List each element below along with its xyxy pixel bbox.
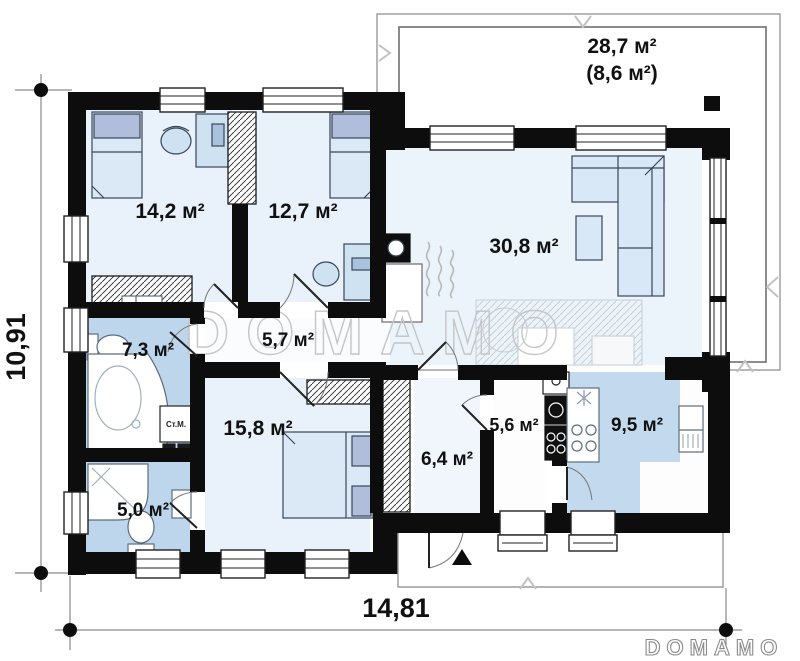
window-icon	[305, 550, 349, 578]
bed-icon	[92, 112, 142, 198]
floor-plan-drawing: DOMAMO	[0, 0, 800, 661]
room-area-label-bathroom: 7,3 м²	[122, 340, 174, 361]
room-area-label-bedroom2: 12,7 м²	[268, 200, 337, 223]
room-area-label-terrace: 28,7 м²	[587, 35, 656, 58]
window-icon	[221, 550, 265, 578]
dimension-dot	[34, 83, 48, 97]
bed-icon	[330, 112, 376, 198]
window-icon	[64, 308, 88, 352]
room-area-label-hall: 5,7 м²	[262, 330, 314, 351]
room-area-label-wc: 5,0 м²	[117, 500, 169, 521]
room-pantry	[494, 378, 545, 513]
room-area-label-living: 30,8 м²	[489, 235, 558, 258]
fridge-icon	[679, 406, 703, 452]
washing-machine-label: Ст.М.	[166, 420, 186, 429]
bed-icon	[283, 432, 373, 518]
room-area-label-entry: 6,4 м²	[421, 449, 473, 470]
window-icon	[263, 88, 343, 112]
bathtub-icon	[88, 354, 169, 450]
window-icon	[576, 126, 666, 150]
dimension-dot	[34, 566, 48, 580]
terrace-column	[704, 96, 720, 111]
window-icon	[136, 550, 180, 578]
room-area-label-kitchen: 9,5 м²	[611, 415, 663, 436]
dimension-height-label: 10,91	[1, 313, 31, 381]
window-icon	[64, 492, 88, 534]
stove-icon	[545, 426, 567, 460]
window-icon	[498, 511, 547, 551]
entrance-door-icon	[429, 533, 472, 568]
room-entry	[414, 378, 480, 513]
chair-icon	[313, 262, 339, 286]
window-icon	[64, 216, 88, 262]
dimension-width-label: 14,81	[362, 593, 430, 623]
window-icon	[160, 88, 205, 112]
room-area-label-bedroom3: 15,8 м²	[223, 417, 292, 440]
oven-icon	[545, 396, 567, 424]
room-area-label-bedroom1: 14,2 м²	[135, 200, 204, 223]
window-icon	[430, 126, 514, 150]
floor-plan-page: DOMAMO	[0, 0, 800, 661]
room-area-label-pantry: 5,6 м²	[489, 415, 538, 435]
sliding-glass-door-icon	[710, 158, 726, 356]
dimension-dot	[63, 623, 77, 637]
chair-icon	[161, 128, 191, 154]
window-icon	[569, 511, 617, 551]
pantry-appliances	[543, 372, 569, 460]
coffee-table-icon	[576, 216, 602, 260]
room-area-label-terrace-covered: (8,6 м²)	[586, 62, 658, 85]
logo-text: DOMAMO	[645, 635, 784, 660]
